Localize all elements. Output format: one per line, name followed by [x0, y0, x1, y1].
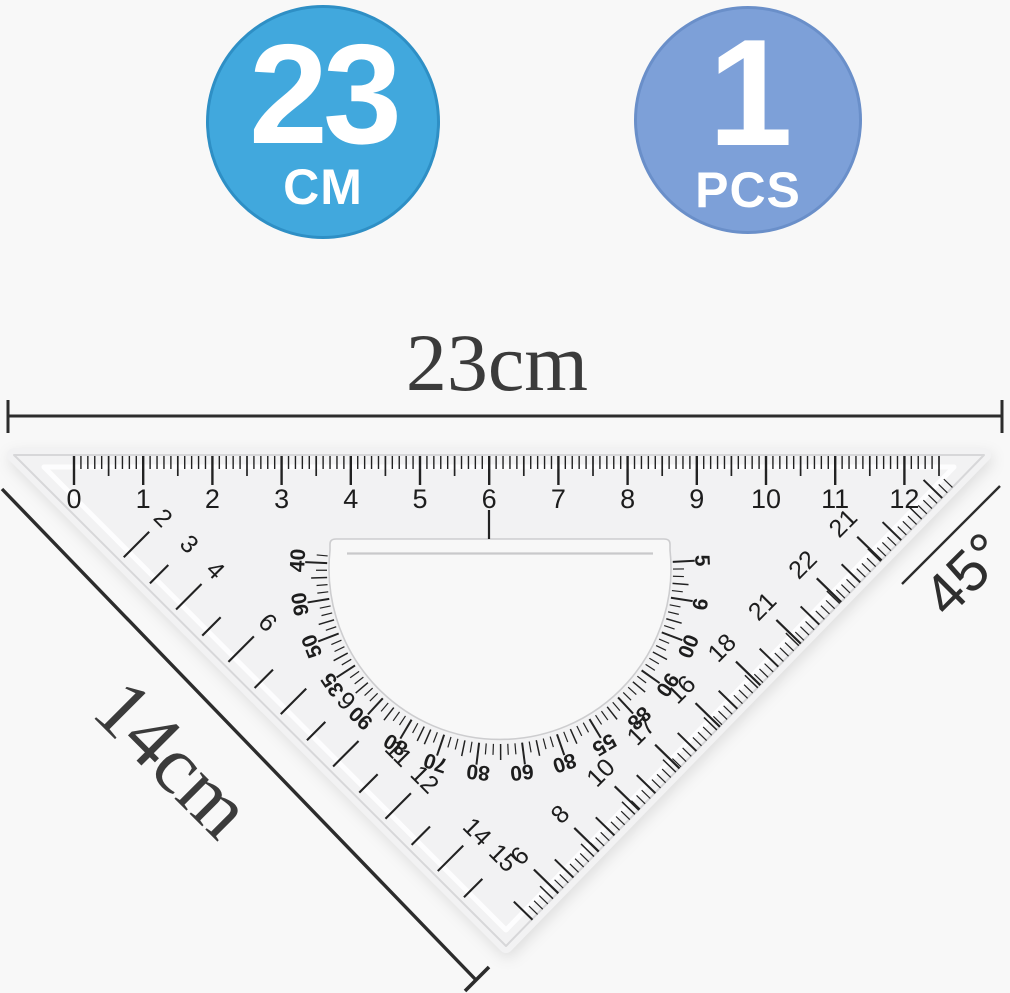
top-scale-number: 1 — [136, 484, 151, 514]
top-scale-number: 7 — [551, 484, 566, 514]
badge-quantity-1pcs: 1 PCS — [634, 6, 862, 234]
top-scale-number: 2 — [205, 484, 220, 514]
top-scale-number: 8 — [620, 484, 635, 514]
badge-quantity-unit: PCS — [695, 164, 801, 217]
badge-size-value: 23 — [249, 30, 397, 161]
top-scale-number: 3 — [274, 484, 289, 514]
product-image-stage: 4090503590807080608055889000950123456789… — [0, 0, 1010, 993]
badge-size-unit: CM — [283, 161, 363, 214]
triangle-ruler-diagram: 4090503590807080608055889000950123456789… — [0, 0, 1010, 993]
protractor-degree-label: 90 — [287, 591, 314, 618]
top-scale-number: 6 — [482, 484, 497, 514]
protractor-degree-label: 80 — [465, 759, 491, 784]
protractor-degree-label: 40 — [286, 548, 310, 573]
protractor-degree-label: 5 — [690, 554, 714, 567]
top-scale-number: 4 — [343, 484, 358, 514]
badge-size-23cm: 23 CM — [206, 5, 440, 239]
product-illustration-page: { "scene": { "background": "#f8f8f8", "d… — [0, 0, 1010, 993]
top-scale-number: 0 — [66, 484, 81, 514]
top-scale-number: 10 — [751, 484, 781, 514]
badge-quantity-value: 1 — [708, 24, 788, 164]
protractor-degree-label: 60 — [509, 759, 535, 784]
dimension-label-23cm: 23cm — [297, 316, 697, 410]
top-scale-number: 9 — [689, 484, 704, 514]
top-scale-number: 5 — [412, 484, 427, 514]
top-scale-number: 12 — [889, 484, 919, 514]
